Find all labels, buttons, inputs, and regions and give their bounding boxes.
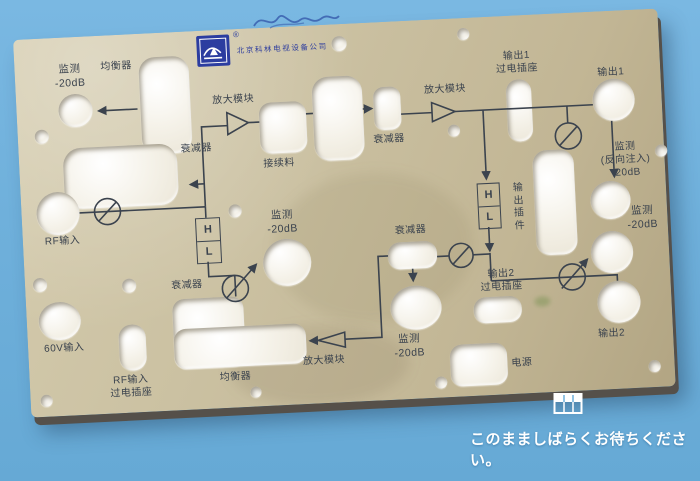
label-monitor-in: 监测 -20dB xyxy=(44,62,95,92)
hl-low-label: L xyxy=(197,241,221,264)
photo-stage: ® 北京科林电视设备公司 xyxy=(0,0,700,481)
label-output1-socket: 输出1 过电插座 xyxy=(476,47,557,77)
label-amp-module-2: 放大模块 xyxy=(424,82,467,97)
label-equalizer-top: 均衡器 xyxy=(100,59,132,74)
hl-high-label: H xyxy=(196,218,220,242)
hl-low-label: L xyxy=(479,206,501,229)
amplifier-triangle-icon xyxy=(432,102,456,122)
trace-coupler4-att xyxy=(437,256,449,257)
label-attenuator-1: 衰减器 xyxy=(180,141,212,156)
label-splice-module: 接续料 xyxy=(263,156,295,171)
hl-high-label: H xyxy=(478,183,500,206)
trace-top-bus xyxy=(455,105,593,112)
label-output2-socket: 输出2 过电插座 xyxy=(463,266,540,296)
label-output1: 输出1 xyxy=(597,65,625,79)
grid-table-icon xyxy=(553,392,583,415)
trace-into-hl2 xyxy=(483,110,486,179)
amplifier-front-panel: ® 北京科林电视设备公司 xyxy=(13,8,676,417)
trace-att-to-amp2 xyxy=(401,113,432,115)
label-amp-module-top: 放大模块 xyxy=(212,92,255,107)
amplifier-triangle-icon xyxy=(318,332,346,348)
trace-monitor-in-tap xyxy=(99,109,138,111)
label-attenuator-2: 衰减器 xyxy=(373,132,405,147)
trace-coupler2-tap xyxy=(225,264,258,297)
amplifier-triangle-icon xyxy=(227,112,249,135)
hl-diplexer-box: H L xyxy=(477,182,502,229)
label-attenuator-4: 衰减器 xyxy=(394,223,426,238)
label-attenuator-3: 衰减器 xyxy=(171,278,203,293)
label-equalizer-bottom: 均衡器 xyxy=(219,370,251,385)
coupler-diagonal xyxy=(559,127,578,146)
label-rf-input: RF输入 xyxy=(45,234,81,249)
label-output-plugin: 输出插件 xyxy=(513,182,528,233)
handwritten-scribble xyxy=(250,6,342,34)
coupler-diagonal xyxy=(452,246,471,265)
label-monitor-center: 监测 -20dB xyxy=(258,208,307,238)
label-60v-input: 60V输入 xyxy=(44,341,85,356)
label-output2: 输出2 xyxy=(598,326,626,340)
trace-tap-module-left xyxy=(190,184,204,185)
label-monitor-right: 监测 -20dB xyxy=(620,203,665,232)
trace-hl2-down xyxy=(489,227,490,251)
wait-message: このまましばらくお待ちください。 xyxy=(470,428,700,470)
trace-up-to-amp xyxy=(201,126,231,207)
trace-coupler3-feed xyxy=(567,106,568,123)
trace-rf-main xyxy=(80,207,206,213)
trace-monitor-bottom-tap xyxy=(413,269,414,281)
label-rf-socket: RF输入 过电插座 xyxy=(95,372,166,401)
trace-att-to-amp3 xyxy=(341,256,392,339)
hl-diplexer-box: H L xyxy=(195,217,222,264)
label-monitor-reverse: 监测 (反向注入) -20dB xyxy=(589,138,663,180)
trace-to-coupler4 xyxy=(473,254,490,255)
label-monitor-bottom: 监测 -20dB xyxy=(384,332,435,362)
trace-hl1-up xyxy=(205,207,206,218)
label-amp-module-3: 放大模块 xyxy=(303,353,346,368)
label-power: 电源 xyxy=(511,356,533,370)
